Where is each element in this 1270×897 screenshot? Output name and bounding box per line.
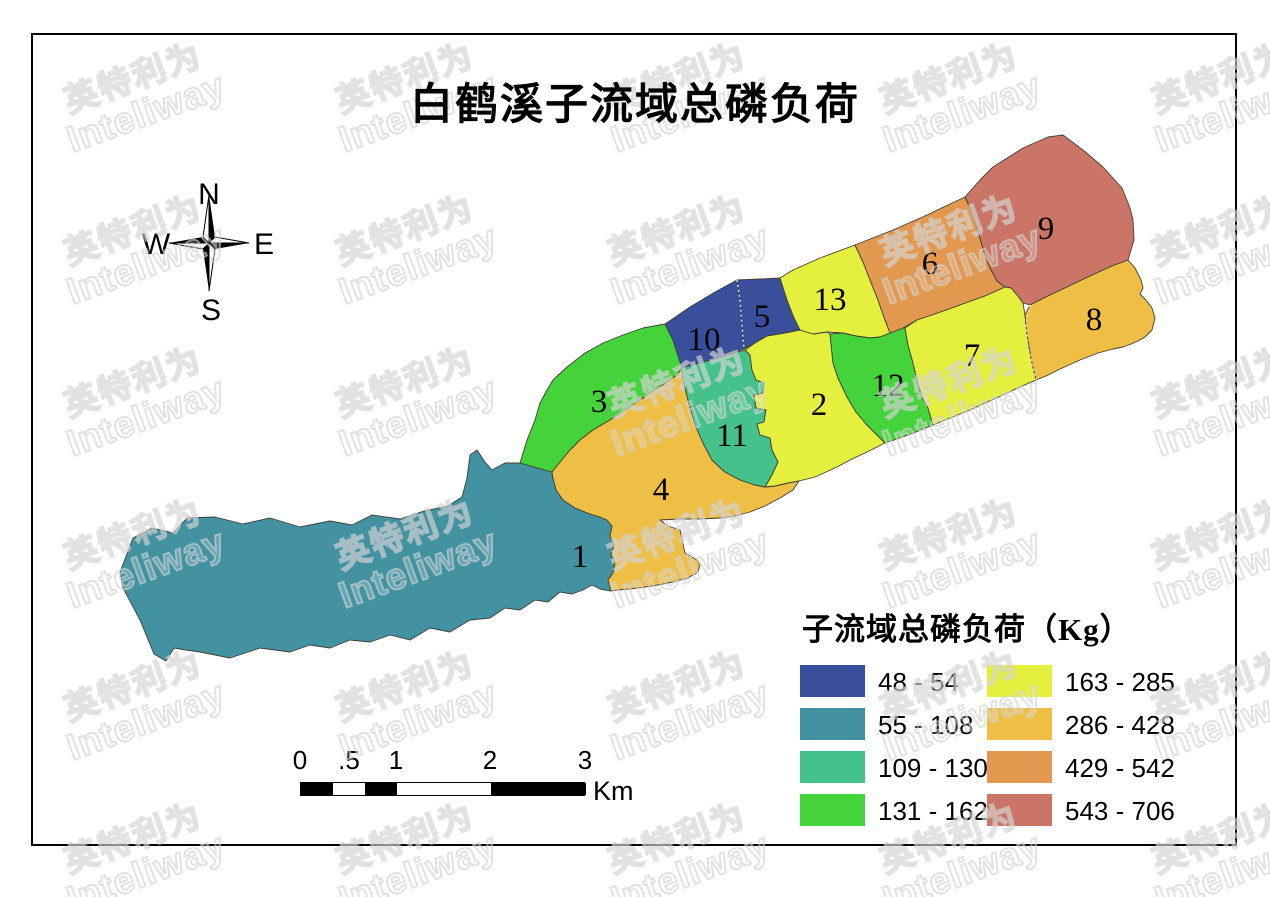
legend-swatch [800, 751, 865, 783]
legend-range-label: 48 - 54 [878, 666, 959, 698]
legend-swatch [987, 751, 1052, 783]
compass-west-label: W [142, 228, 171, 261]
legend-range-label: 55 - 108 [878, 709, 973, 741]
map-document: 13410511213126978 白鹤溪子流域总磷负荷 N S W E 子流域… [0, 0, 1270, 897]
scale-bar-segment [365, 783, 397, 795]
scale-bar: 0.5123 Km [285, 742, 675, 804]
map-region-label-4: 4 [653, 472, 670, 508]
legend-swatch [800, 794, 865, 826]
scale-bar-tick-label: 3 [578, 745, 592, 776]
map-region-label-3: 3 [591, 384, 608, 420]
map-region-label-1: 1 [572, 539, 589, 575]
legend-range-label: 131 - 162 [878, 795, 988, 827]
legend-range-label: 163 - 285 [1065, 666, 1175, 698]
map-region-label-7: 7 [964, 338, 981, 374]
map-region-label-8: 8 [1086, 302, 1103, 338]
map-region-label-9: 9 [1038, 211, 1055, 247]
scale-bar-tick-label: 0 [293, 745, 307, 776]
legend-range-label: 543 - 706 [1065, 795, 1175, 827]
legend-swatch [987, 665, 1052, 697]
map-region-label-2: 2 [811, 387, 828, 423]
scale-bar-unit: Km [593, 776, 634, 807]
scale-bar-segment [301, 783, 333, 795]
compass-south-label: S [201, 294, 221, 327]
map-region-label-11: 11 [716, 418, 748, 454]
map-region-1 [120, 450, 615, 661]
scale-bar-segment [491, 783, 586, 795]
map-region-label-6: 6 [922, 246, 939, 282]
legend: 子流域总磷负荷（Kg） 48 - 5455 - 108109 - 130131 … [798, 600, 1228, 850]
legend-range-label: 286 - 428 [1065, 709, 1175, 741]
compass-east-label: E [254, 228, 274, 261]
legend-range-label: 429 - 542 [1065, 752, 1175, 784]
scale-bar-tick-label: 1 [389, 745, 403, 776]
legend-title: 子流域总磷负荷（Kg） [802, 604, 1132, 649]
legend-range-label: 109 - 130 [878, 752, 988, 784]
map-region-label-13: 13 [814, 282, 847, 318]
legend-swatch [987, 794, 1052, 826]
legend-swatch [987, 708, 1052, 740]
legend-swatch [800, 708, 865, 740]
map-region-label-12: 12 [872, 368, 905, 404]
map-region-label-5: 5 [754, 299, 771, 335]
page-title: 白鹤溪子流域总磷负荷 [0, 70, 1270, 132]
map-region-label-10: 10 [688, 322, 721, 358]
scale-bar-graphic [300, 782, 585, 796]
scale-bar-segment [397, 783, 491, 795]
scale-bar-tick-label: 2 [483, 745, 497, 776]
scale-bar-segment [333, 783, 365, 795]
legend-swatch [800, 665, 865, 697]
compass-rose-icon: N S W E [130, 160, 290, 340]
scale-bar-tick-label: .5 [338, 745, 360, 776]
